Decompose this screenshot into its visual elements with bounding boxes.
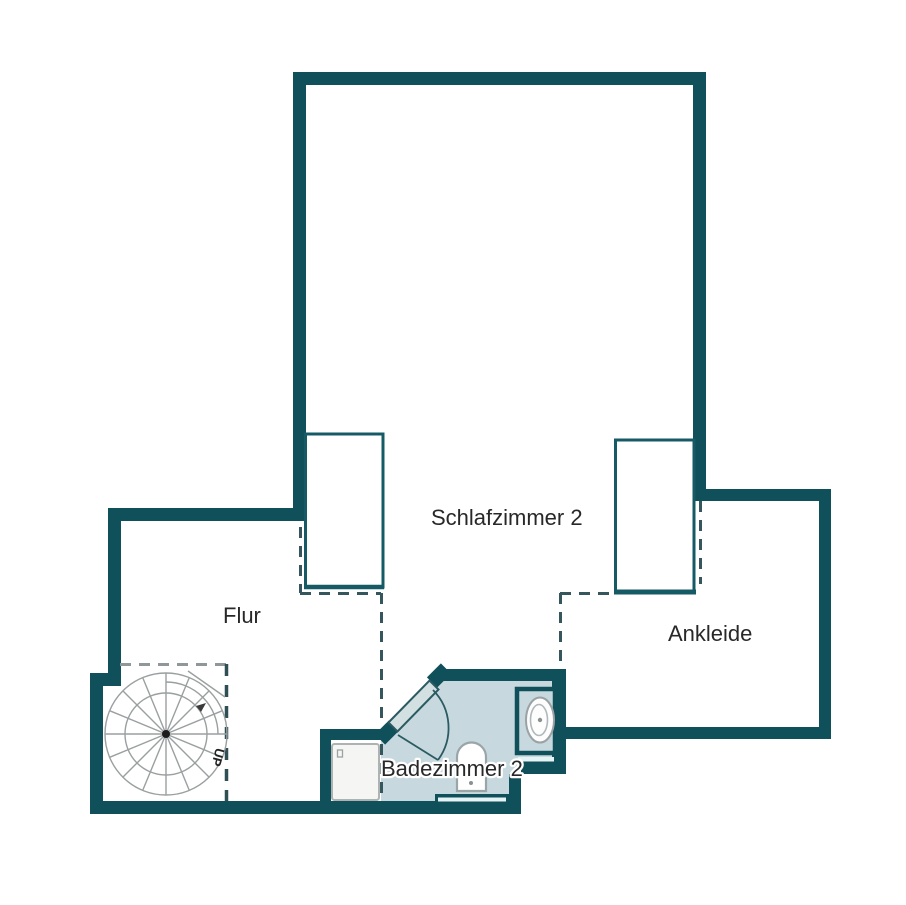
svg-text:Flur: Flur: [223, 603, 261, 628]
svg-text:Badezimmer 2: Badezimmer 2: [381, 756, 523, 781]
svg-text:Ankleide: Ankleide: [668, 621, 752, 646]
svg-text:Schlafzimmer 2: Schlafzimmer 2: [431, 505, 583, 530]
